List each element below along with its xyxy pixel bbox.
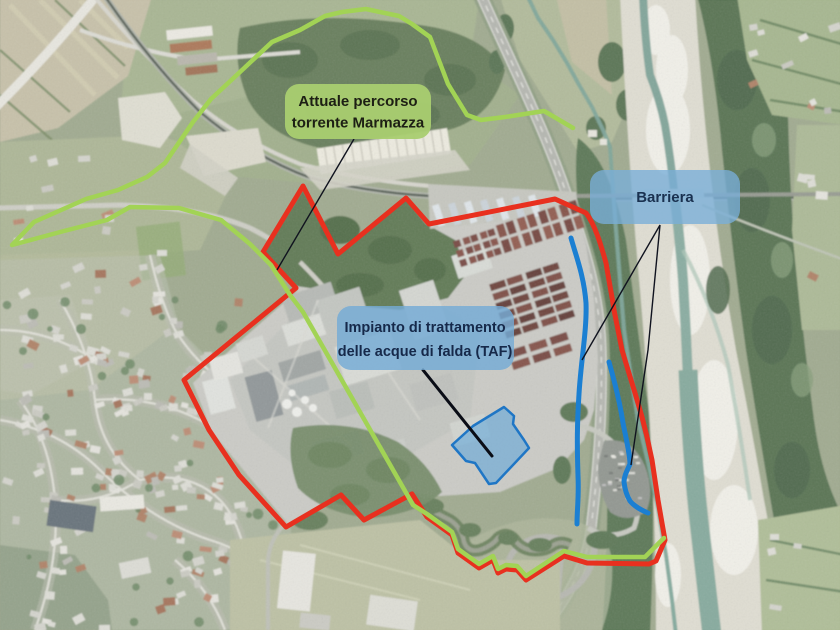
svg-text:delle acque di falda (TAF): delle acque di falda (TAF) <box>338 344 513 360</box>
svg-text:torrente Marmazza: torrente Marmazza <box>292 115 425 132</box>
svg-text:Barriera: Barriera <box>636 189 694 206</box>
svg-text:Attuale percorso: Attuale percorso <box>298 93 417 110</box>
svg-text:Impianto di trattamento: Impianto di trattamento <box>344 320 505 336</box>
